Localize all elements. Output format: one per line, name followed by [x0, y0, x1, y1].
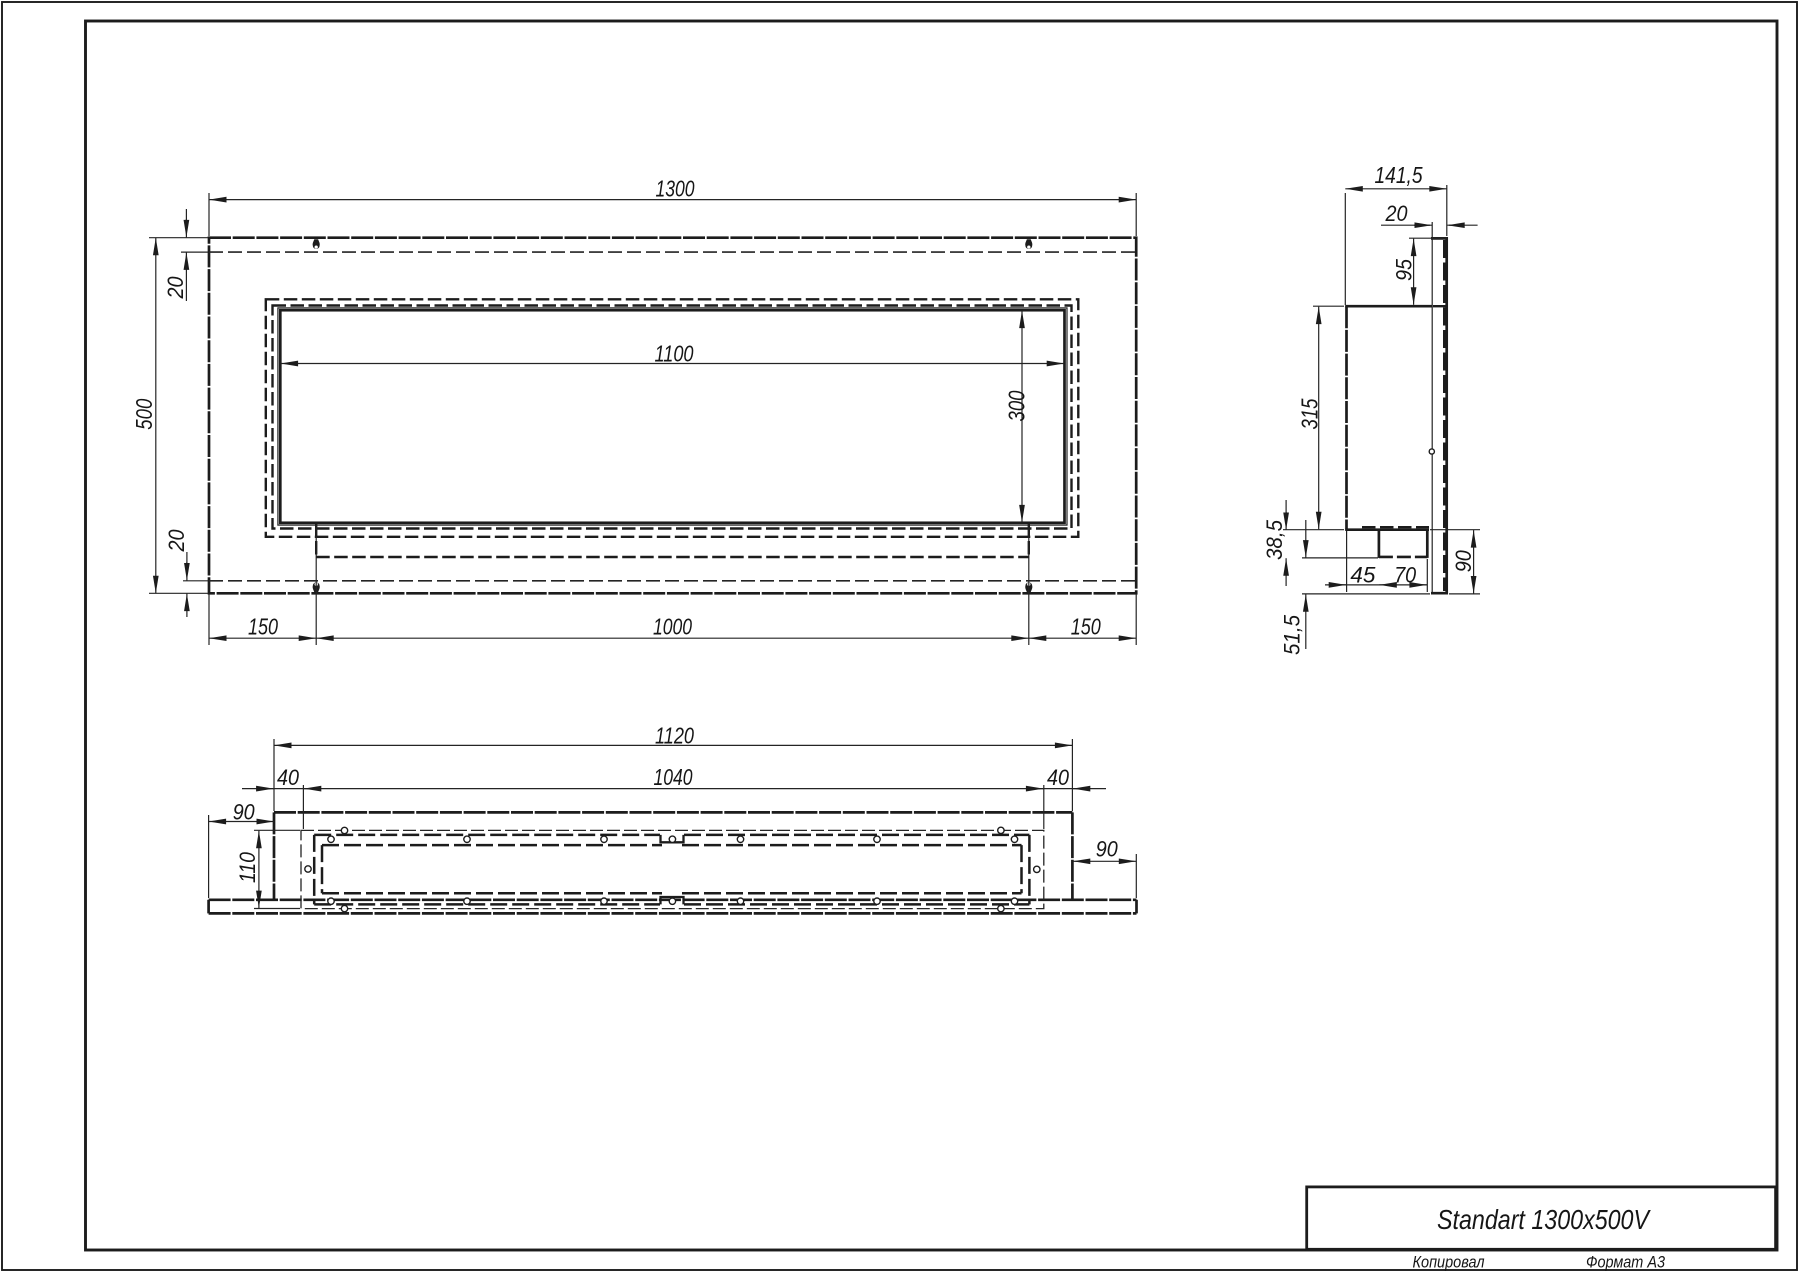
svg-text:1000: 1000: [653, 613, 692, 639]
svg-text:40: 40: [277, 765, 300, 790]
svg-text:150: 150: [1071, 613, 1101, 639]
svg-text:90: 90: [1096, 836, 1119, 861]
svg-text:315: 315: [1297, 398, 1323, 429]
svg-text:141,5: 141,5: [1375, 162, 1423, 188]
svg-text:90: 90: [1451, 550, 1476, 573]
svg-text:1100: 1100: [655, 341, 694, 367]
svg-text:500: 500: [131, 399, 157, 430]
svg-text:Формат А3: Формат А3: [1586, 1254, 1666, 1272]
svg-text:300: 300: [1003, 390, 1029, 421]
svg-text:45: 45: [1350, 562, 1376, 587]
svg-text:1040: 1040: [654, 764, 693, 790]
svg-text:150: 150: [248, 613, 278, 639]
svg-text:20: 20: [163, 276, 188, 300]
svg-text:Копировал: Копировал: [1413, 1254, 1485, 1272]
svg-text:1120: 1120: [655, 723, 694, 749]
svg-text:38,5: 38,5: [1262, 519, 1287, 560]
svg-text:90: 90: [233, 799, 256, 824]
svg-text:Standart 1300x500V: Standart 1300x500V: [1437, 1204, 1651, 1235]
svg-text:51,5: 51,5: [1280, 614, 1305, 655]
svg-text:1300: 1300: [656, 175, 695, 201]
svg-text:20: 20: [1385, 201, 1409, 226]
svg-text:40: 40: [1047, 765, 1070, 790]
svg-text:20: 20: [164, 529, 189, 553]
svg-text:110: 110: [235, 851, 260, 883]
svg-text:70: 70: [1394, 562, 1417, 587]
svg-text:95: 95: [1392, 258, 1417, 281]
